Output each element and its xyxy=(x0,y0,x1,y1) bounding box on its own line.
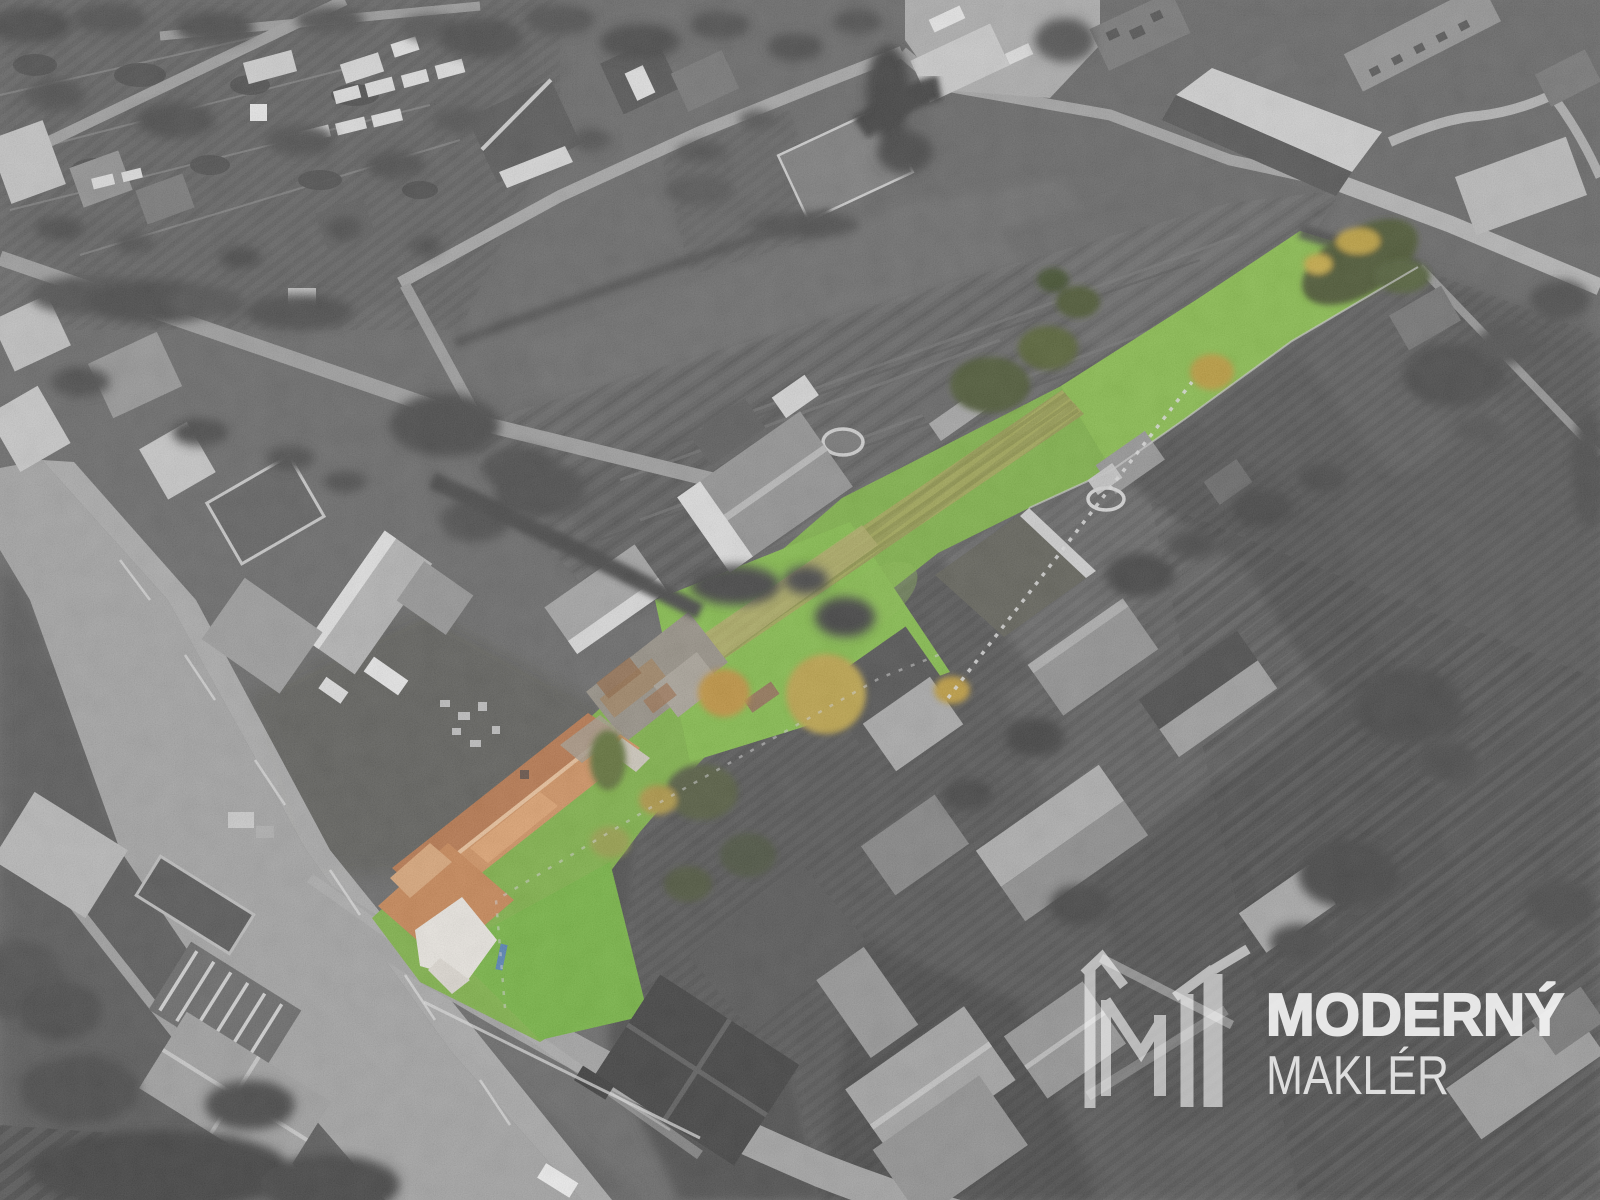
svg-text:MODERNÝ: MODERNÝ xyxy=(1266,982,1564,1048)
svg-text:MAKLÉR: MAKLÉR xyxy=(1266,1044,1449,1106)
